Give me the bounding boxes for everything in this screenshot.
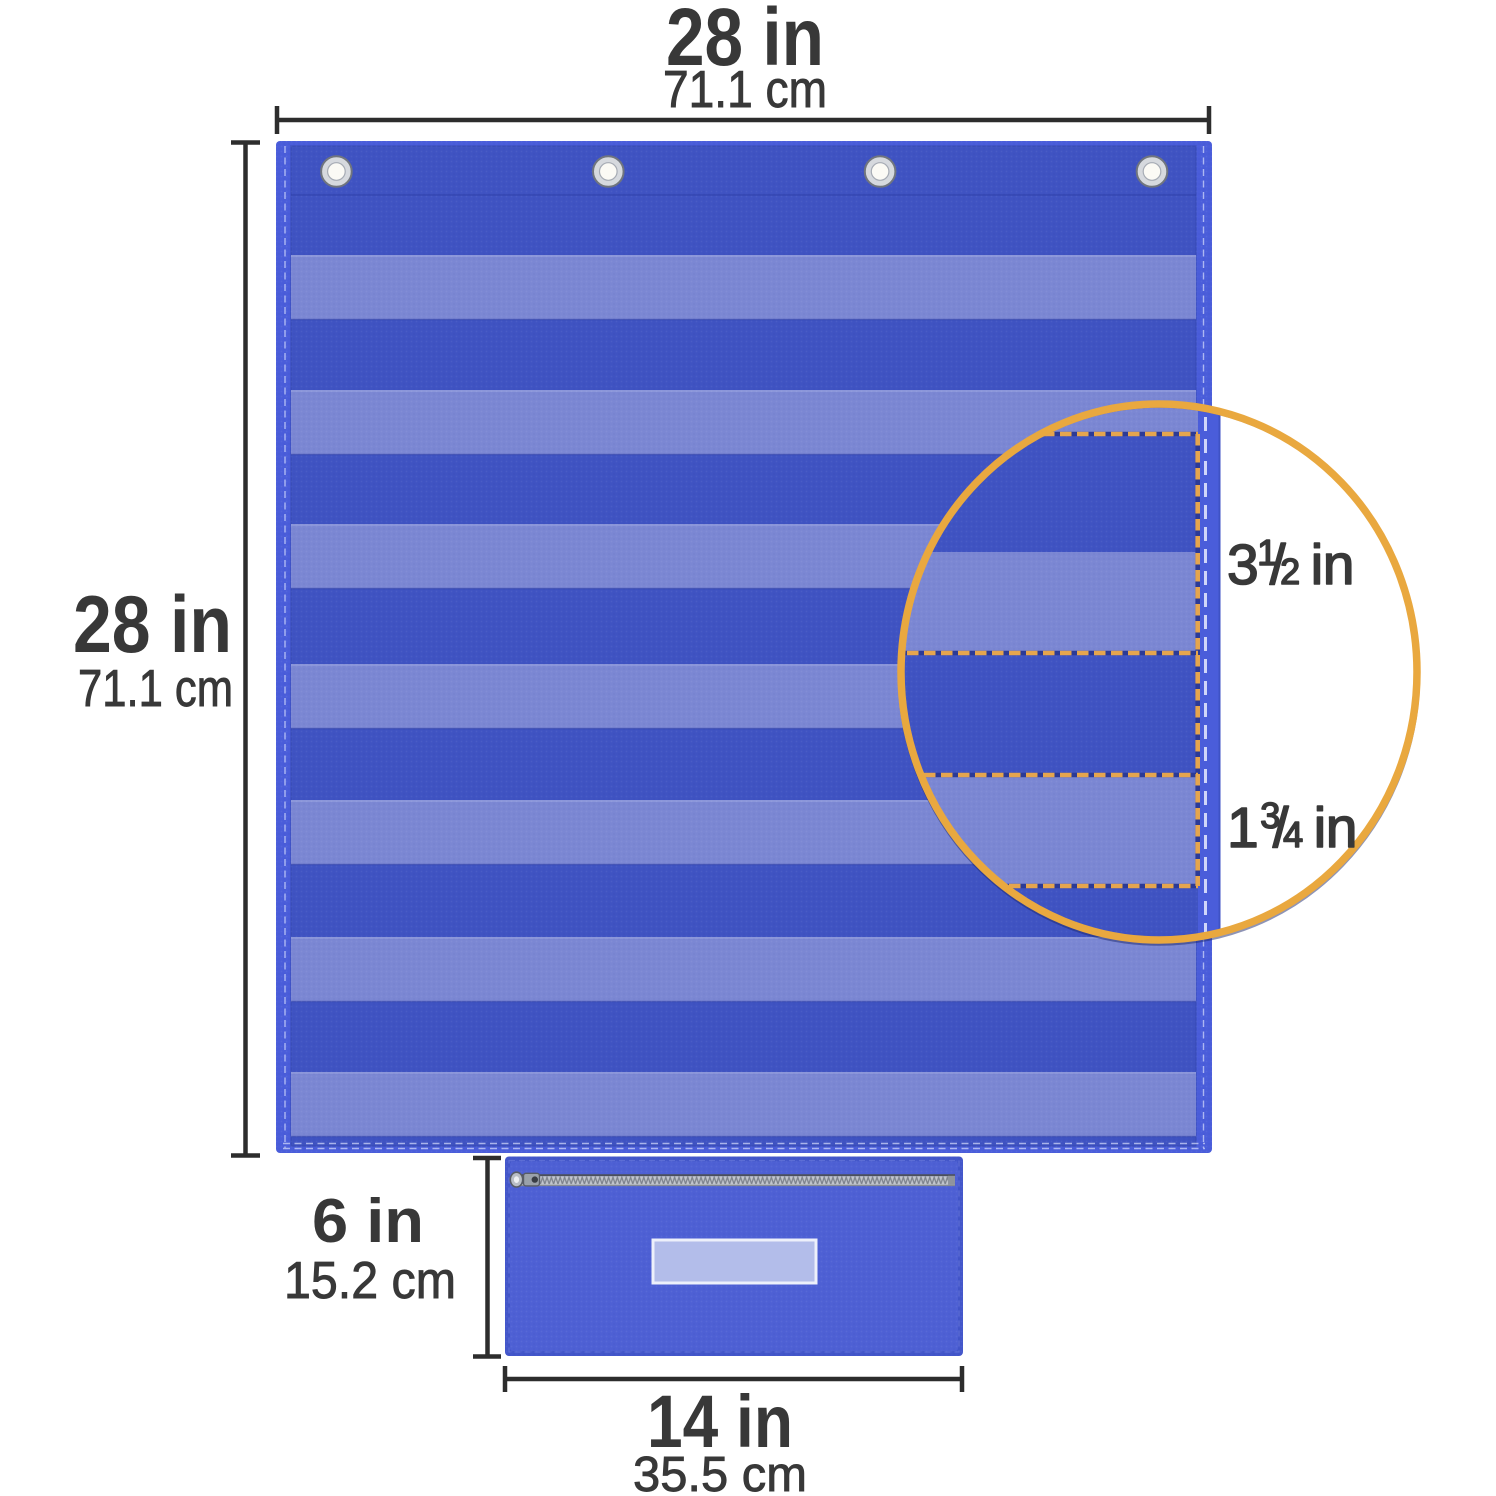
svg-text:71.1 cm: 71.1 cm (78, 660, 233, 718)
svg-text:35.5 cm: 35.5 cm (633, 1448, 807, 1496)
svg-text:6 in: 6 in (312, 1187, 424, 1256)
svg-text:15.2 cm: 15.2 cm (284, 1252, 456, 1310)
svg-text:71.1 cm: 71.1 cm (663, 61, 827, 119)
svg-text:28 in: 28 in (73, 580, 232, 670)
